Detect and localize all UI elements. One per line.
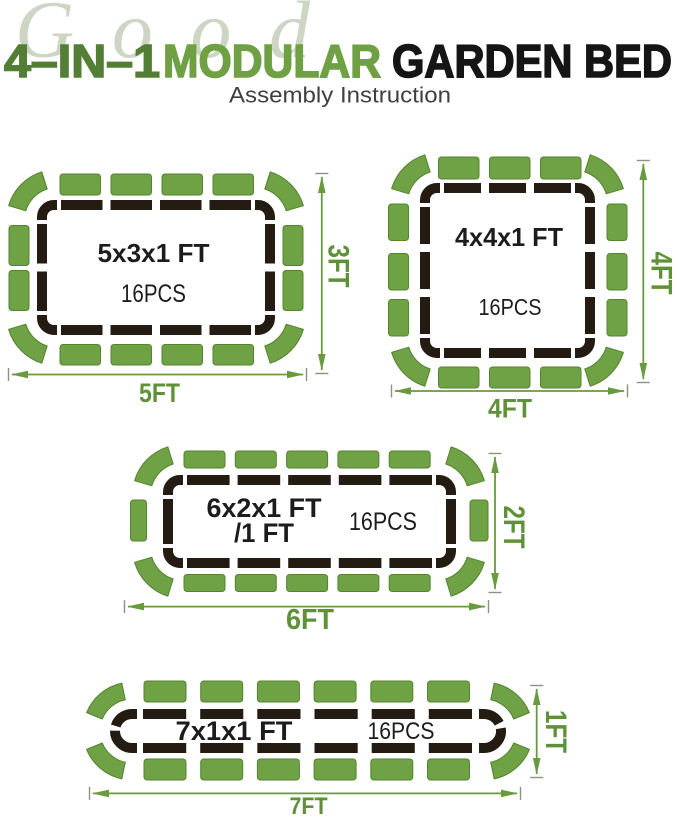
svg-text:2FT: 2FT	[497, 506, 530, 549]
svg-text:GARDEN BED: GARDEN BED	[392, 35, 672, 87]
svg-text:4–IN–1: 4–IN–1	[4, 35, 160, 87]
svg-text:4FT: 4FT	[488, 394, 532, 424]
svg-text:16PCS: 16PCS	[349, 508, 417, 536]
svg-text:7x1x1 FT: 7x1x1 FT	[176, 716, 294, 746]
svg-text:16PCS: 16PCS	[121, 280, 186, 308]
svg-text:Assembly Instruction: Assembly Instruction	[229, 83, 451, 108]
svg-text:/1 FT: /1 FT	[234, 518, 294, 548]
svg-text:4FT: 4FT	[645, 252, 678, 295]
svg-text:MODULAR: MODULAR	[163, 35, 381, 87]
svg-text:3FT: 3FT	[322, 245, 355, 288]
svg-text:1FT: 1FT	[539, 710, 572, 753]
svg-text:4x4x1 FT: 4x4x1 FT	[455, 222, 563, 252]
svg-text:6FT: 6FT	[286, 604, 335, 636]
svg-text:7FT: 7FT	[290, 793, 328, 819]
svg-text:16PCS: 16PCS	[368, 718, 435, 745]
svg-text:16PCS: 16PCS	[479, 294, 542, 320]
svg-text:5FT: 5FT	[139, 378, 180, 408]
svg-text:5x3x1 FT: 5x3x1 FT	[98, 238, 210, 268]
